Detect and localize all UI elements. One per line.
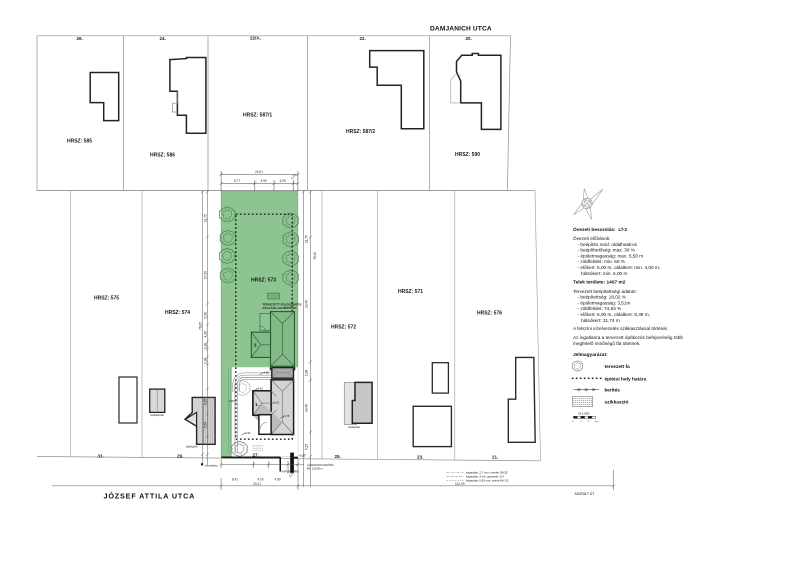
- svg-text:HRSZ: 576: HRSZ: 576: [477, 311, 502, 317]
- svg-text:hátsókert: min. 6,00 m: hátsókert: min. 6,00 m: [581, 271, 627, 276]
- svg-text:HRSZ: 587/2: HRSZ: 587/2: [346, 129, 375, 135]
- svg-text:+4,98: +4,98: [262, 370, 269, 374]
- svg-text:építési hely határa: építési hely határa: [605, 376, 647, 382]
- svg-text:DAMJANICH UTCA: DAMJANICH UTCA: [430, 26, 492, 33]
- svg-text:128,9: 128,9: [229, 399, 236, 403]
- svg-text:+6,02: +6,02: [273, 400, 280, 404]
- svg-text:22.: 22.: [360, 36, 366, 41]
- svg-text:2.: 2.: [254, 342, 258, 347]
- svg-text:kapacitás: 0,63 mm; széria NA: kapacitás: 0,63 mm; széria NA 1/2: [466, 478, 509, 482]
- svg-text:- előkert: 6,00 m, oldalkert:: - előkert: 6,00 m, oldalkert: 8,39 m,: [578, 312, 650, 317]
- svg-text:vízóraakna: vízóraakna: [205, 463, 218, 467]
- svg-text:CSALÁDI LAKÓÉPÜLET: CSALÁDI LAKÓÉPÜLET: [262, 305, 297, 310]
- svg-text:- előkert: 5,00 m, oldalkert:: - előkert: 5,00 m, oldalkert: min. 4,00 …: [578, 265, 661, 270]
- svg-text:- beépítés mód: oldalhatáros: - beépítés mód: oldalhatáros: [578, 242, 638, 247]
- svg-text:M 1:500: M 1:500: [579, 412, 590, 416]
- svg-text:lakóépület: lakóépület: [349, 426, 361, 429]
- svg-text:20,01: 20,01: [255, 170, 263, 174]
- svg-text:lakóépület: lakóépület: [186, 445, 198, 448]
- svg-text:5,30: 5,30: [203, 312, 207, 318]
- svg-text:megfelelő minőségű fát ültetne: megfelelő minőségű fát ültetnek.: [573, 341, 641, 346]
- svg-text:hátsókert: 31,74 m: hátsókert: 31,74 m: [581, 318, 620, 323]
- svg-text:Telek területe: 1407 m2: Telek területe: 1407 m2: [573, 280, 626, 286]
- svg-text:1.: 1.: [255, 402, 259, 407]
- svg-text:melléképület: melléképület: [150, 414, 164, 417]
- svg-text:27.: 27.: [253, 453, 259, 458]
- svg-text:8,41: 8,41: [232, 478, 238, 482]
- svg-text:+5,78: +5,78: [283, 414, 290, 418]
- svg-text:6 m: 6 m: [595, 421, 599, 423]
- svg-text:HRSZ: 585: HRSZ: 585: [67, 139, 92, 145]
- svg-text:JÓZSEF ATTILA UTCA: JÓZSEF ATTILA UTCA: [104, 492, 196, 501]
- svg-text:22/A.: 22/A.: [250, 36, 261, 41]
- svg-text:HRSZ: 587/1: HRSZ: 587/1: [243, 113, 272, 119]
- svg-text:kerítés: kerítés: [605, 388, 621, 394]
- svg-text:Az ingatlanra a tervezett épít: Az ingatlanra a tervezett építkezés befe…: [573, 335, 683, 340]
- svg-text:- épületmagasság: 3,51m: - épületmagasság: 3,51m: [578, 300, 631, 305]
- svg-text:25.: 25.: [335, 454, 341, 459]
- svg-text:- zöldfelület: 74,84 %: - zöldfelület: 74,84 %: [578, 306, 622, 311]
- svg-text:1,98: 1,98: [305, 370, 309, 376]
- svg-text:23.: 23.: [417, 454, 423, 459]
- svg-text:5,55: 5,55: [203, 422, 207, 428]
- svg-text:- beépítettség: 18,02 %: - beépítettség: 18,02 %: [578, 295, 626, 300]
- svg-text:14,40: 14,40: [305, 404, 309, 412]
- svg-text:- beépíthetőség: max. 30 %: - beépíthetőség: max. 30 %: [578, 248, 635, 253]
- svg-text:29.: 29.: [177, 454, 183, 459]
- svg-text:HRSZ: 574: HRSZ: 574: [165, 310, 190, 316]
- svg-text:112,09: 112,09: [455, 482, 465, 486]
- svg-text:1,98: 1,98: [203, 358, 207, 364]
- svg-text:21.: 21.: [492, 455, 498, 460]
- svg-text:- zöldfelület: min. 60 %: - zöldfelület: min. 60 %: [578, 259, 625, 264]
- svg-text:HRSZ: 590: HRSZ: 590: [455, 152, 480, 158]
- svg-text:A felszíni vízelvezetés szikka: A felszíni vízelvezetés szikkasztással t…: [573, 326, 668, 331]
- svg-text:MF: 120,50 m: MF: 120,50 m: [307, 466, 323, 470]
- svg-text:1,90: 1,90: [203, 343, 207, 349]
- svg-text:76,49: 76,49: [313, 252, 317, 260]
- svg-text:8,77: 8,77: [234, 179, 240, 183]
- svg-text:HRSZ: 572: HRSZ: 572: [331, 325, 356, 331]
- svg-text:4,30: 4,30: [203, 331, 207, 337]
- svg-text:szikkasztó: szikkasztó: [605, 400, 629, 406]
- svg-text:11,75: 11,75: [305, 235, 309, 243]
- svg-text:76,05: 76,05: [198, 322, 202, 330]
- svg-text:20,21: 20,21: [253, 482, 261, 486]
- svg-text:+4,43: +4,43: [256, 386, 263, 390]
- svg-text:19,45: 19,45: [305, 300, 309, 308]
- svg-text:31.: 31.: [98, 454, 104, 459]
- svg-text:Övezeti besorolás: Lf-2: Övezeti besorolás: Lf-2: [573, 226, 627, 233]
- svg-text:4,99: 4,99: [280, 179, 286, 183]
- svg-text:4,99: 4,99: [275, 478, 281, 482]
- svg-text:- épületmagasság: max. 5,50 m: - épületmagasság: max. 5,50 m: [578, 253, 644, 258]
- svg-text:5,23: 5,23: [305, 444, 309, 450]
- svg-text:HRSZ: 575: HRSZ: 575: [94, 296, 119, 302]
- svg-text:24.: 24.: [160, 36, 166, 41]
- svg-text:Övezeti előírások:: Övezeti előírások:: [573, 235, 611, 241]
- svg-text:Jelmagyarázat:: Jelmagyarázat:: [573, 352, 608, 358]
- svg-text:20.: 20.: [466, 36, 472, 41]
- svg-text:HRSZ: 573: HRSZ: 573: [251, 278, 276, 284]
- svg-text:11,75: 11,75: [203, 214, 207, 222]
- svg-text:ASZFALT ÚT: ASZFALT ÚT: [575, 491, 595, 496]
- svg-text:17,35: 17,35: [203, 271, 207, 279]
- svg-text:4,99: 4,99: [261, 179, 267, 183]
- svg-text:Tervezett beépítettségi adatok: Tervezett beépítettségi adatok:: [573, 289, 637, 294]
- svg-text:HRSZ: 571: HRSZ: 571: [398, 289, 423, 295]
- svg-text:6,25: 6,25: [203, 399, 207, 405]
- svg-text:+0,30: +0,30: [244, 431, 251, 435]
- svg-text:HRSZ: 586: HRSZ: 586: [150, 153, 175, 159]
- svg-text:26.: 26.: [77, 36, 83, 41]
- svg-text:tervezett fa: tervezett fa: [605, 364, 631, 370]
